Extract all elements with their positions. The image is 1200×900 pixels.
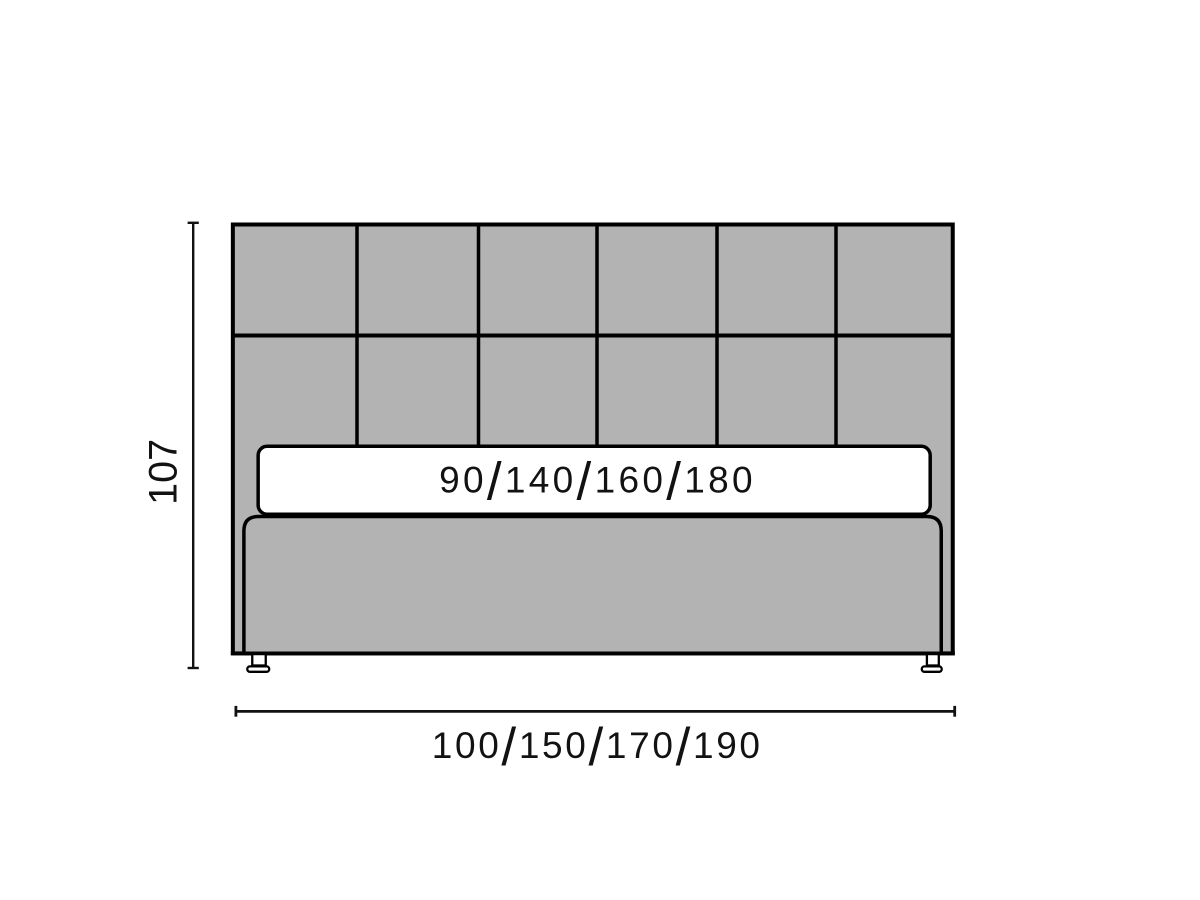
svg-text:107: 107 xyxy=(141,439,185,505)
